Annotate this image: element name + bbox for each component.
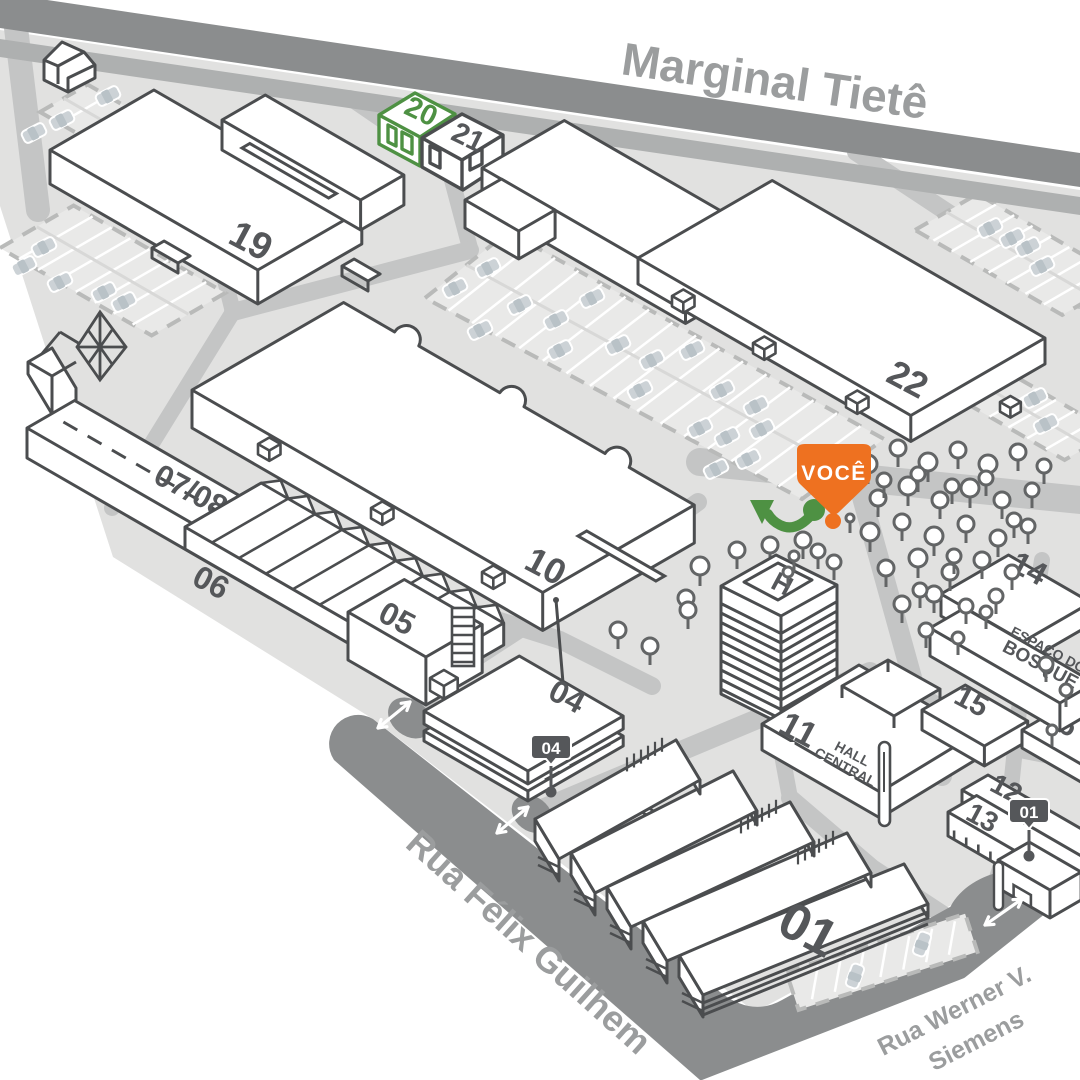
- svg-text:VOCÊ: VOCÊ: [801, 461, 867, 485]
- svg-text:01: 01: [1020, 803, 1039, 822]
- svg-text:04: 04: [542, 739, 561, 758]
